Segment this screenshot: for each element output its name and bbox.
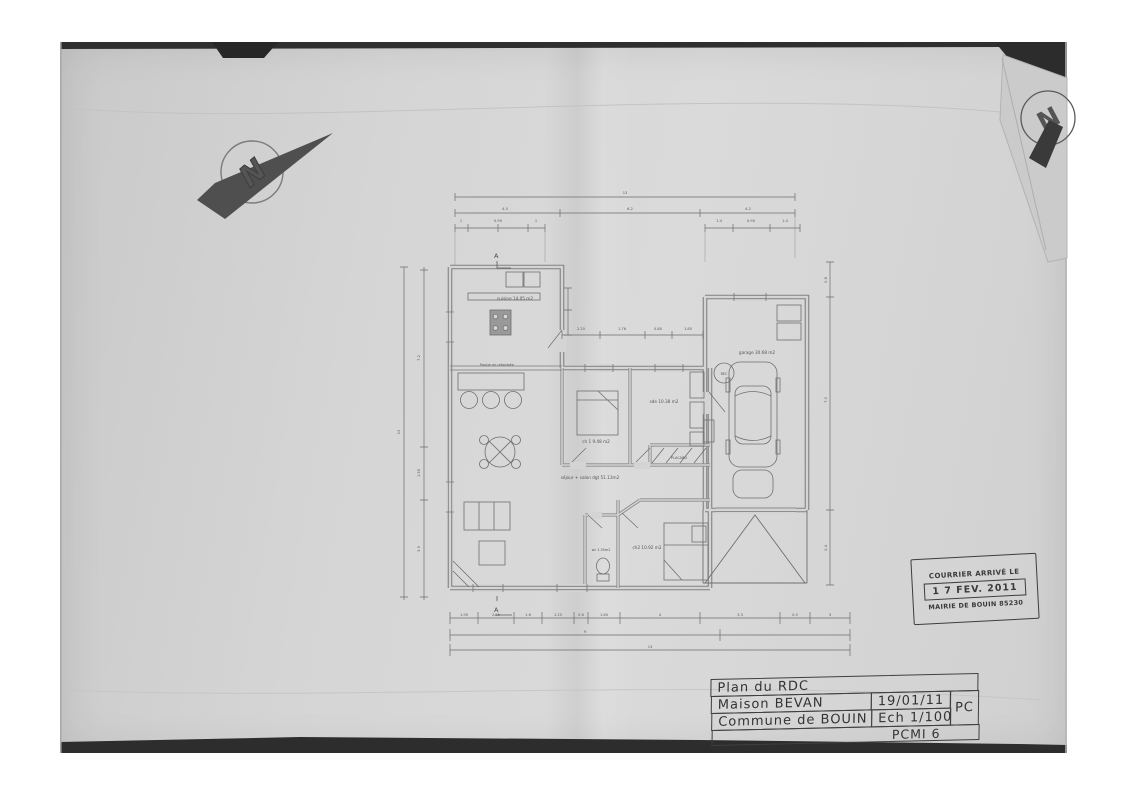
dim-label: 1	[535, 219, 537, 223]
dim-label: 0.90	[494, 219, 503, 223]
wall-openings	[446, 293, 796, 592]
section-marker-top: A	[494, 252, 499, 260]
ch1-label: ch 1 9.48 m2	[582, 439, 610, 444]
dim-label: 4.2	[745, 207, 751, 211]
dim-label: 4	[659, 613, 662, 617]
sde-label: sde 10.38 m2	[650, 399, 679, 404]
dim-label: 2.4	[824, 544, 828, 550]
dim-label: 13	[397, 430, 401, 435]
dim-label: 1.4	[716, 219, 722, 223]
stamp-date-box: 1 7 FEV. 2011	[924, 578, 1026, 600]
title-block: Plan du RDC Maison BEVAN 19/01/11 PC Com…	[710, 673, 979, 747]
dim-label: 0.80	[654, 327, 663, 331]
stamp-footer: MAIRIE DE BOUIN 85230	[928, 598, 1023, 611]
dim-label: 1.25	[554, 613, 562, 617]
dim-label: 1.90	[460, 613, 469, 617]
beam-label: Poutre en retombée	[480, 363, 514, 367]
dim-label: 3.9	[417, 545, 421, 551]
dim-label: 3.3	[737, 613, 743, 617]
dim-label: 0.6	[578, 613, 584, 617]
placard-label: PLACARD	[671, 456, 687, 460]
dim-label: 7.0	[824, 396, 828, 402]
dim-label: 0.90	[747, 219, 756, 223]
north-arrow: N	[197, 133, 333, 219]
section-markers: A A	[494, 252, 512, 615]
dim-label: 2.25	[492, 613, 500, 617]
construction-lines	[455, 217, 795, 265]
sejour-label: séjour + salon dgt 51.13m2	[561, 475, 620, 480]
dim-label: 1.4	[782, 219, 788, 223]
dim-label: 1.85	[684, 327, 692, 331]
scanned-plan-page: { "north": { "letter": "N" }, "rooms": {…	[0, 0, 1130, 800]
dim-label: 1	[460, 219, 462, 223]
dim-label: 1.55	[417, 469, 421, 477]
wc-label: wc 1.55m2	[592, 548, 611, 552]
dim-label: 7.2	[417, 355, 421, 361]
dim-label: 0.5	[792, 613, 798, 617]
cuisine-label: cuisine 14.05 m2	[497, 296, 533, 301]
ch2-label: ch2 10.92 m2	[632, 545, 661, 550]
dim-label: 6.2	[627, 207, 633, 211]
dim-label: 1.6	[525, 613, 531, 617]
dim-label: 0.8	[824, 276, 828, 282]
dim-label: 13	[648, 645, 653, 649]
dim-label: 1.60	[600, 613, 609, 617]
mairie-arrival-stamp: COURRIER ARRIVÉ LE 1 7 FEV. 2011 MAIRIE …	[910, 553, 1039, 626]
dim-label: 3	[829, 613, 831, 617]
underlying-sheet-corner: N	[1000, 55, 1075, 262]
title-block-type: PC	[950, 690, 979, 726]
dim-label: 9	[584, 630, 587, 634]
dim-label: 1.76	[618, 327, 627, 331]
dim-label: 4.5	[502, 207, 508, 211]
garage-label: garage 30.68 m2	[739, 350, 775, 355]
rec-label: REC	[721, 372, 728, 376]
stamp-date: 1 7 FEV. 2011	[932, 581, 1018, 596]
dim-label: 2.25	[577, 327, 585, 331]
dim-label: 13	[623, 191, 628, 195]
